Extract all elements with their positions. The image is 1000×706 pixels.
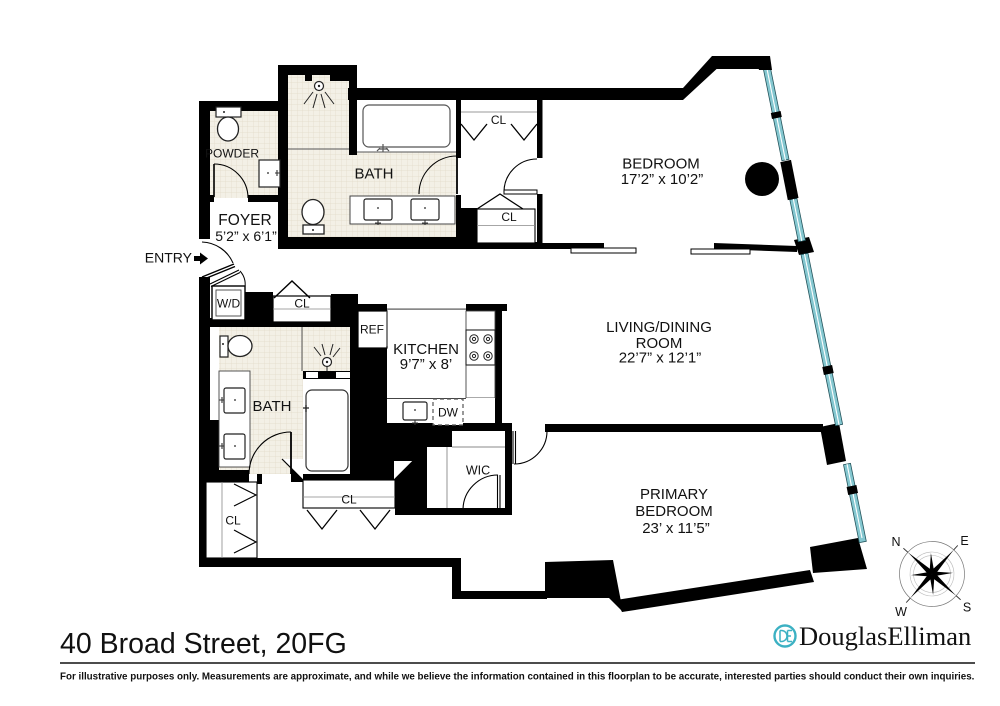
svg-text:40 Broad Street, 20FG: 40 Broad Street, 20FG [60,628,347,660]
svg-text:CL: CL [501,210,517,224]
svg-text:REF: REF [360,323,384,337]
svg-text:PRIMARY: PRIMARY [640,486,708,503]
svg-text:9’7” x 8’: 9’7” x 8’ [400,356,453,373]
svg-text:N: N [891,535,900,549]
svg-text:23’ x 11’5”: 23’ x 11’5” [642,520,710,537]
svg-text:POWDER: POWDER [205,147,259,161]
svg-text:WIC: WIC [466,464,490,478]
svg-text:CL: CL [225,514,241,528]
svg-text:W/D: W/D [217,297,241,311]
svg-text:BEDROOM: BEDROOM [635,503,713,520]
svg-text:S: S [963,601,971,615]
svg-text:CL: CL [341,493,357,507]
svg-text:BATH: BATH [253,398,292,415]
svg-text:BATH: BATH [355,166,394,183]
svg-text:17’2” x 10’2”: 17’2” x 10’2” [621,171,704,188]
svg-text:For illustrative purposes only: For illustrative purposes only. Measurem… [60,672,975,683]
svg-text:E: E [960,534,968,548]
svg-text:CL: CL [294,297,310,311]
svg-text:FOYER: FOYER [218,212,271,229]
svg-text:BEDROOM: BEDROOM [622,156,700,173]
svg-text:DW: DW [438,406,459,420]
svg-text:LIVING/DINING: LIVING/DINING [606,319,712,336]
svg-text:DouglasElliman: DouglasElliman [799,621,971,651]
svg-text:ENTRY: ENTRY [145,250,193,266]
svg-text:W: W [895,605,907,619]
svg-text:5’2” x 6’1”: 5’2” x 6’1” [215,228,277,244]
svg-text:CL: CL [491,113,507,127]
svg-text:22’7” x 12’1”: 22’7” x 12’1” [619,350,702,367]
